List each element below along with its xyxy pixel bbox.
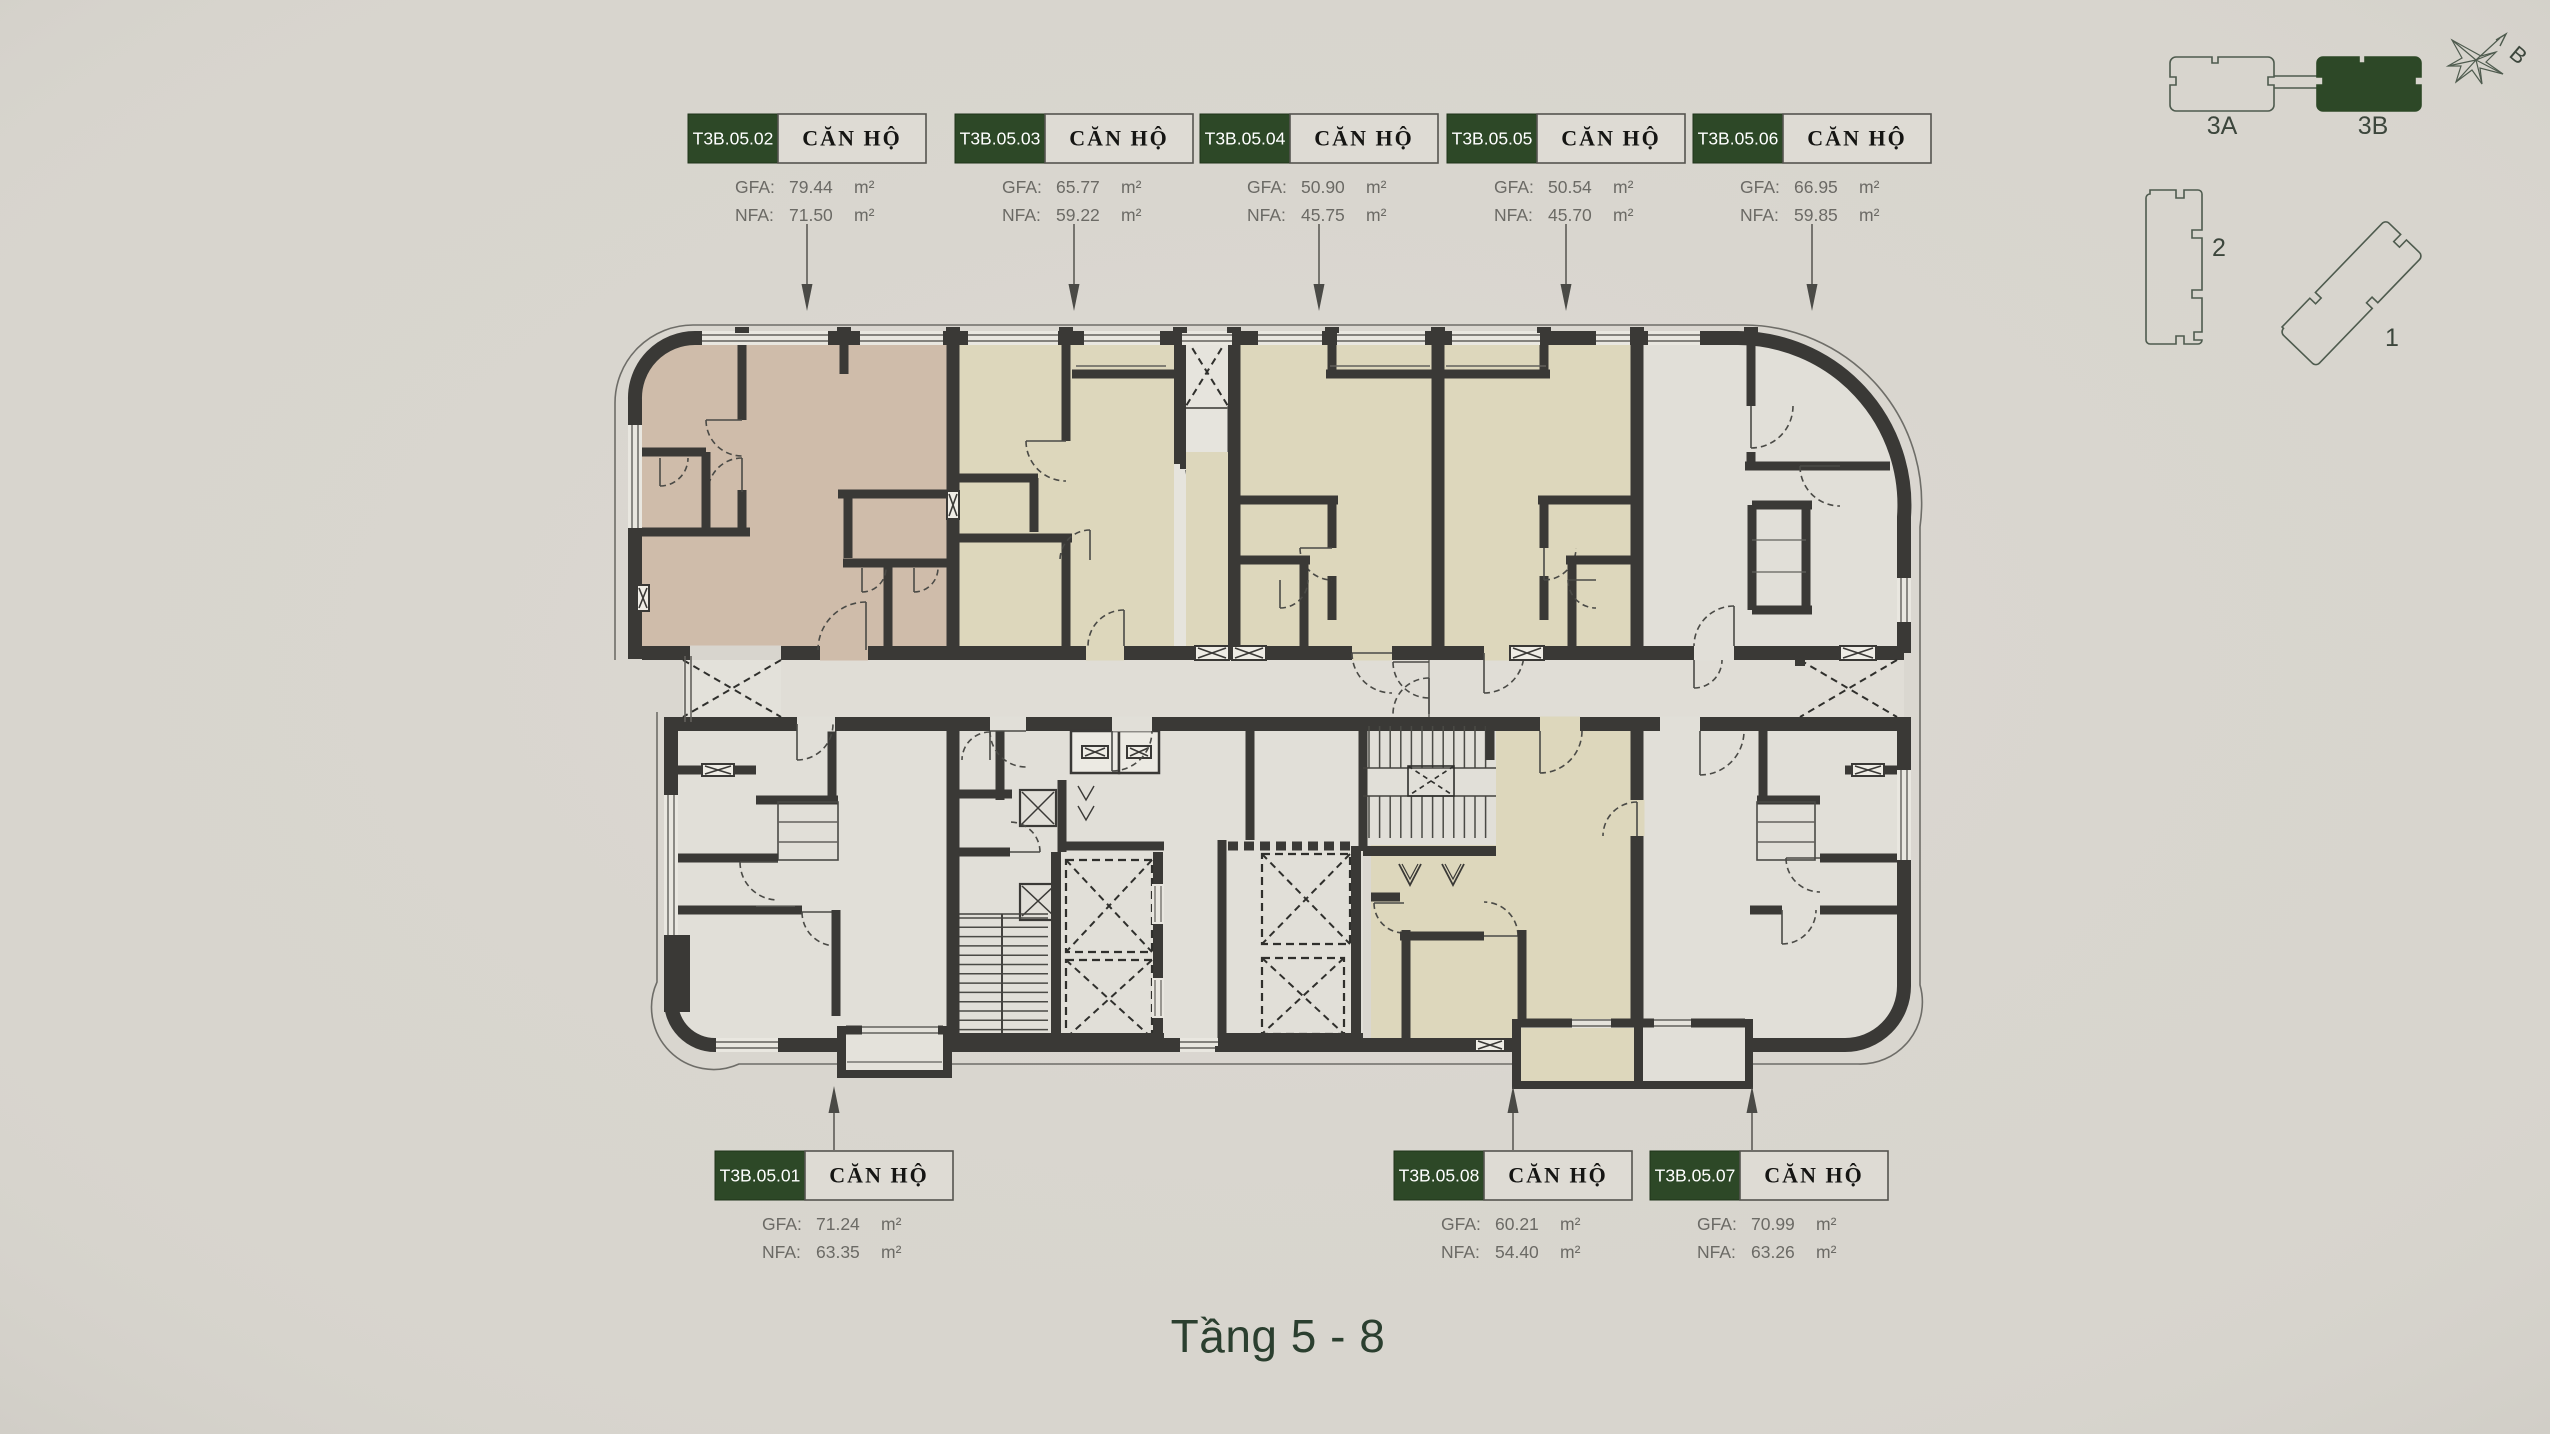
svg-text:m²: m²: [854, 205, 875, 225]
svg-text:GFA:: GFA:: [1494, 177, 1534, 197]
svg-text:GFA:: GFA:: [1740, 177, 1780, 197]
svg-text:m²: m²: [1859, 205, 1880, 225]
svg-text:79.44: 79.44: [789, 177, 833, 197]
svg-text:60.21: 60.21: [1495, 1214, 1539, 1234]
svg-text:m²: m²: [1613, 177, 1634, 197]
svg-text:T3B.05.05: T3B.05.05: [1452, 129, 1533, 149]
svg-text:GFA:: GFA:: [1441, 1214, 1481, 1234]
svg-text:CĂN HỘ: CĂN HỘ: [1561, 126, 1660, 151]
svg-text:GFA:: GFA:: [1002, 177, 1042, 197]
svg-text:71.24: 71.24: [816, 1214, 860, 1234]
svg-text:Tầng 5 - 8: Tầng 5 - 8: [1171, 1310, 1386, 1362]
svg-text:m²: m²: [1613, 205, 1634, 225]
svg-text:T3B.05.04: T3B.05.04: [1205, 129, 1286, 149]
svg-text:70.99: 70.99: [1751, 1214, 1795, 1234]
svg-text:T3B.05.01: T3B.05.01: [720, 1166, 801, 1186]
svg-text:NFA:: NFA:: [1697, 1242, 1736, 1262]
svg-text:CĂN HỘ: CĂN HỘ: [1764, 1163, 1863, 1188]
svg-text:71.50: 71.50: [789, 205, 833, 225]
svg-text:CĂN HỘ: CĂN HỘ: [1314, 126, 1413, 151]
svg-text:63.35: 63.35: [816, 1242, 860, 1262]
svg-text:m²: m²: [1121, 177, 1142, 197]
svg-text:63.26: 63.26: [1751, 1242, 1795, 1262]
svg-text:GFA:: GFA:: [1247, 177, 1287, 197]
svg-text:1: 1: [2385, 324, 2399, 352]
svg-text:m²: m²: [1560, 1214, 1581, 1234]
svg-text:NFA:: NFA:: [1740, 205, 1779, 225]
svg-text:45.70: 45.70: [1548, 205, 1592, 225]
svg-text:NFA:: NFA:: [735, 205, 774, 225]
svg-text:GFA:: GFA:: [762, 1214, 802, 1234]
svg-text:m²: m²: [1121, 205, 1142, 225]
svg-text:2: 2: [2212, 234, 2226, 262]
svg-text:54.40: 54.40: [1495, 1242, 1539, 1262]
svg-text:CĂN HỘ: CĂN HỘ: [1807, 126, 1906, 151]
svg-text:m²: m²: [881, 1242, 902, 1262]
svg-text:GFA:: GFA:: [1697, 1214, 1737, 1234]
svg-text:m²: m²: [1816, 1242, 1837, 1262]
svg-text:65.77: 65.77: [1056, 177, 1100, 197]
svg-text:50.90: 50.90: [1301, 177, 1345, 197]
svg-text:m²: m²: [1366, 205, 1387, 225]
svg-text:NFA:: NFA:: [1494, 205, 1533, 225]
svg-text:m²: m²: [1859, 177, 1880, 197]
svg-text:CĂN HỘ: CĂN HỘ: [829, 1163, 928, 1188]
svg-text:NFA:: NFA:: [1441, 1242, 1480, 1262]
svg-text:m²: m²: [1366, 177, 1387, 197]
svg-text:T3B.05.03: T3B.05.03: [960, 129, 1041, 149]
svg-text:NFA:: NFA:: [1247, 205, 1286, 225]
svg-text:m²: m²: [1560, 1242, 1581, 1262]
svg-text:CĂN HỘ: CĂN HỘ: [1508, 1163, 1607, 1188]
svg-text:T3B.05.07: T3B.05.07: [1655, 1166, 1736, 1186]
svg-text:NFA:: NFA:: [762, 1242, 801, 1262]
svg-text:T3B.05.06: T3B.05.06: [1698, 129, 1779, 149]
svg-text:3B: 3B: [2358, 112, 2389, 140]
svg-text:66.95: 66.95: [1794, 177, 1838, 197]
svg-text:GFA:: GFA:: [735, 177, 775, 197]
svg-text:m²: m²: [1816, 1214, 1837, 1234]
svg-text:59.85: 59.85: [1794, 205, 1838, 225]
svg-text:3A: 3A: [2207, 112, 2238, 140]
svg-text:T3B.05.02: T3B.05.02: [693, 129, 774, 149]
svg-text:50.54: 50.54: [1548, 177, 1592, 197]
svg-text:45.75: 45.75: [1301, 205, 1345, 225]
svg-text:m²: m²: [854, 177, 875, 197]
svg-text:CĂN HỘ: CĂN HỘ: [802, 126, 901, 151]
svg-text:NFA:: NFA:: [1002, 205, 1041, 225]
svg-text:CĂN HỘ: CĂN HỘ: [1069, 126, 1168, 151]
svg-text:59.22: 59.22: [1056, 205, 1100, 225]
svg-text:T3B.05.08: T3B.05.08: [1399, 1166, 1480, 1186]
svg-text:m²: m²: [881, 1214, 902, 1234]
